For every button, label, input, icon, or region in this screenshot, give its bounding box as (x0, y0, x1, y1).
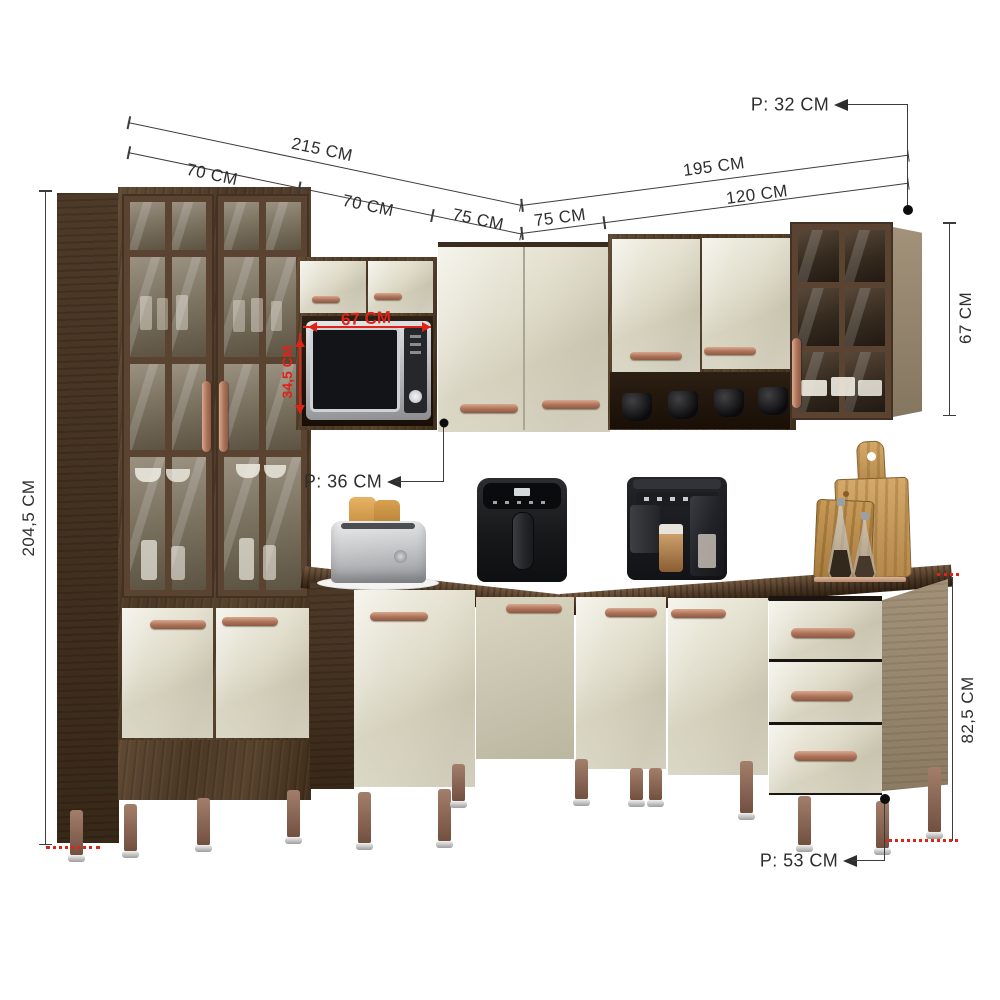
glass-pane (224, 364, 259, 450)
dimension-label-wall-depth-mid: P: 36 CM (304, 472, 382, 493)
glassware (157, 298, 168, 330)
microwave-cabinet-door-left (300, 261, 366, 313)
wall-cabinet-side-panel (893, 227, 922, 417)
glassware (140, 296, 152, 330)
jar (141, 540, 157, 580)
cabinet-leg (452, 764, 465, 802)
door-handle (671, 609, 726, 618)
air-fryer-display (483, 483, 561, 509)
glass-pane (798, 230, 839, 282)
cabinet-leg (70, 810, 83, 856)
red-arrow-up-icon (295, 333, 305, 347)
door-handle (506, 604, 562, 613)
jar (239, 538, 254, 580)
cabinet-leg (649, 768, 662, 801)
dimension-label-left-seg1: 70 CM (184, 160, 239, 190)
leader-line (907, 104, 908, 210)
glassware (251, 298, 263, 332)
latte-glass (659, 534, 683, 572)
door-handle (312, 296, 340, 303)
dimension-label-niche-height: 34,5 CM (279, 346, 295, 399)
door-handle (542, 400, 600, 409)
microwave (306, 321, 431, 420)
toaster-slot (341, 523, 415, 529)
black-mug (668, 391, 698, 419)
glass-pane (798, 288, 839, 346)
red-tick-top (937, 573, 959, 576)
dish-stack (801, 380, 827, 396)
dimension-label-left-seg2: 70 CM (340, 191, 395, 221)
microwave-button (410, 351, 421, 354)
glassware (271, 301, 282, 331)
cabinet-leg (438, 789, 451, 842)
microwave-dial (409, 390, 422, 403)
door-handle (374, 293, 402, 300)
microwave-door (310, 327, 400, 412)
base-cabinet-side-panel (882, 579, 948, 791)
kitchen-product-diagram: 204,5 CM 215 CM 70 CM 70 CM 75 CM 195 CM… (0, 0, 1000, 1000)
base-wood-panel (310, 581, 354, 789)
glassware (176, 295, 188, 330)
cruet-cap (837, 498, 845, 506)
glassware (233, 300, 245, 332)
milk-carafe-unit (630, 505, 660, 553)
leader-line (884, 800, 885, 860)
glass-pane (266, 202, 301, 250)
display-buttons (493, 501, 551, 504)
glass-pane-grid (130, 202, 206, 590)
cabinet-leg (798, 796, 811, 846)
arrow-left-icon (387, 476, 401, 488)
cruet-cap (861, 512, 869, 520)
dimension-line-wall-height (949, 222, 950, 416)
dimension-label-base-depth: P: 53 CM (760, 851, 838, 872)
dimension-label-wall-depth-top: P: 32 CM (751, 95, 829, 116)
door-handle (370, 612, 428, 621)
cabinet-leg (928, 767, 941, 833)
dimension-label-total-height: 204,5 CM (19, 480, 39, 557)
display-readout (514, 488, 530, 496)
glass-pane (130, 364, 165, 450)
toaster-dial (394, 550, 407, 563)
jar (171, 546, 185, 580)
tall-cabinet-side-panel (57, 193, 119, 843)
door-handle (460, 404, 518, 413)
glass-pane (845, 288, 886, 346)
latte-foam (659, 524, 683, 534)
dish-stack (831, 377, 855, 396)
red-arrow-down-icon (295, 405, 305, 419)
glass-pane (845, 230, 886, 282)
arrow-left-icon (843, 855, 857, 867)
black-mug (714, 389, 744, 417)
board-knot (843, 491, 849, 497)
dimension-line-total-height (45, 190, 46, 845)
red-dotted-floor-line-left (46, 846, 100, 849)
base-door (576, 597, 666, 769)
glass-pane (130, 202, 165, 250)
dimension-label-base-height: 82,5 CM (958, 676, 978, 743)
tall-cabinet-glass-door-left (122, 194, 214, 598)
red-dotted-floor-line-right (884, 839, 958, 842)
microwave-cabinet-door-right (368, 261, 433, 313)
milk-cup (698, 534, 716, 568)
dimension-label-right-seg1: 75 CM (533, 205, 587, 232)
cabinet-leg (124, 804, 137, 852)
door-handle (704, 347, 756, 355)
glass-pane (172, 202, 207, 250)
drawer-handle (791, 628, 855, 638)
leader-line (443, 424, 444, 481)
arrow-left-icon (834, 99, 848, 111)
dimension-label-left-total: 215 CM (290, 134, 355, 166)
cabinet-leg (740, 761, 753, 814)
leader-line (848, 104, 908, 105)
base-door (668, 598, 768, 775)
leader-line (851, 860, 885, 861)
toaster-body (331, 521, 426, 583)
dimension-line-base-height (952, 577, 953, 841)
glass-pane (224, 202, 259, 250)
tall-cabinet-base-panel (118, 740, 311, 800)
leader-dot (440, 419, 449, 428)
black-mug (758, 387, 788, 415)
air-fryer-handle (512, 512, 534, 570)
base-corner-door (476, 597, 574, 759)
door-handle (202, 381, 211, 452)
door-handle (222, 617, 278, 626)
cutting-board-hole (867, 452, 876, 461)
leader-dot (903, 205, 913, 215)
dish-stack (858, 380, 882, 396)
cabinet-leg (630, 768, 643, 801)
dimension-label-right-seg2: 120 CM (725, 181, 789, 209)
cabinet-leg (287, 790, 300, 838)
microwave-button (410, 335, 421, 338)
tall-cabinet-lower-door-right (216, 608, 309, 738)
dimension-label-left-seg3: 75 CM (450, 205, 505, 235)
cabinet-leg (358, 792, 371, 844)
cabinet-leg (575, 759, 588, 800)
door-handle (792, 338, 801, 408)
dimension-label-wall-height: 67 CM (956, 292, 976, 344)
jar (263, 545, 276, 580)
microwave-button (410, 343, 421, 346)
drawer-handle (794, 751, 857, 761)
red-arrow-right-icon (422, 322, 436, 332)
black-mug (622, 393, 652, 421)
glass-pane (172, 364, 207, 450)
microwave-control-panel (404, 327, 427, 413)
leader-line (395, 481, 444, 482)
door-split-line (523, 247, 525, 430)
dimension-label-niche-width: 67 CM (340, 308, 391, 331)
cabinet-leg (197, 798, 210, 846)
door-handle (630, 352, 682, 360)
red-arrow-left-icon (303, 322, 317, 332)
door-handle (605, 608, 657, 617)
board-tray (814, 577, 906, 582)
door-handle (219, 381, 228, 452)
leader-dot (880, 794, 890, 804)
espresso-top (633, 479, 721, 489)
drawer-handle (791, 691, 853, 701)
bowl (135, 468, 161, 482)
door-handle (150, 620, 206, 629)
